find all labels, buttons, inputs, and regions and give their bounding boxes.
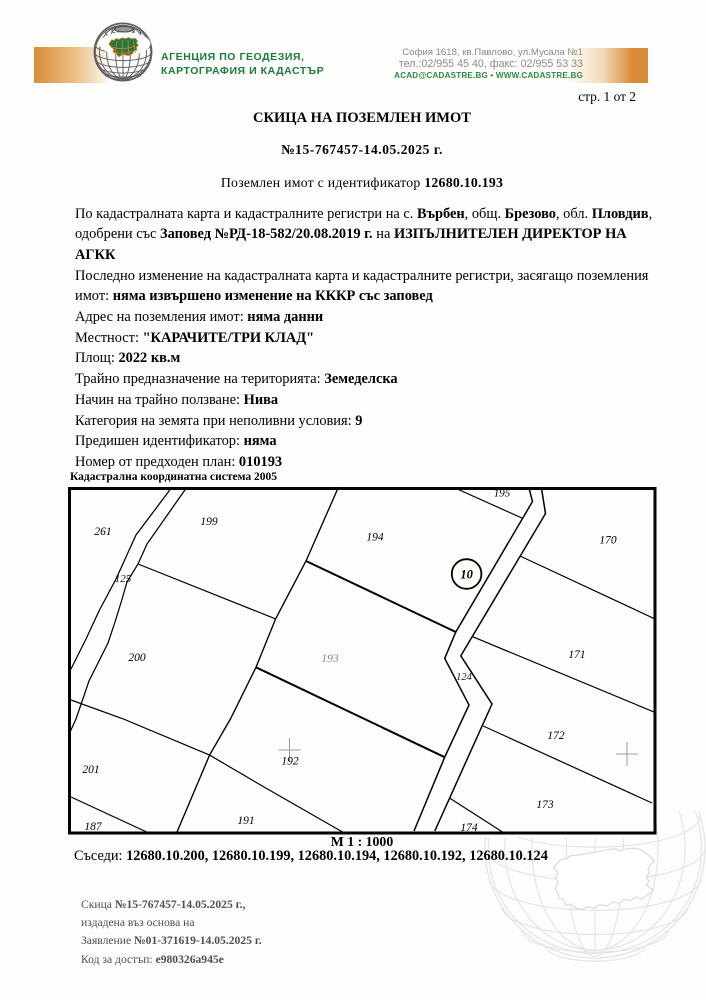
svg-text:193: 193 — [321, 653, 339, 665]
svg-text:194: 194 — [366, 532, 384, 544]
svg-text:261: 261 — [94, 526, 111, 538]
svg-text:10: 10 — [460, 568, 473, 582]
svg-text:187: 187 — [84, 821, 103, 833]
svg-text:172: 172 — [547, 730, 565, 742]
svg-text:124: 124 — [456, 672, 473, 683]
svg-text:170: 170 — [599, 535, 617, 547]
svg-text:199: 199 — [200, 516, 218, 528]
svg-text:191: 191 — [237, 815, 254, 827]
svg-text:173: 173 — [536, 799, 554, 811]
svg-text:201: 201 — [82, 764, 99, 776]
svg-text:125: 125 — [115, 573, 132, 585]
svg-text:195: 195 — [494, 488, 511, 500]
svg-text:192: 192 — [281, 756, 299, 768]
svg-text:200: 200 — [128, 652, 146, 664]
svg-text:171: 171 — [568, 649, 585, 661]
svg-text:174: 174 — [460, 822, 478, 834]
